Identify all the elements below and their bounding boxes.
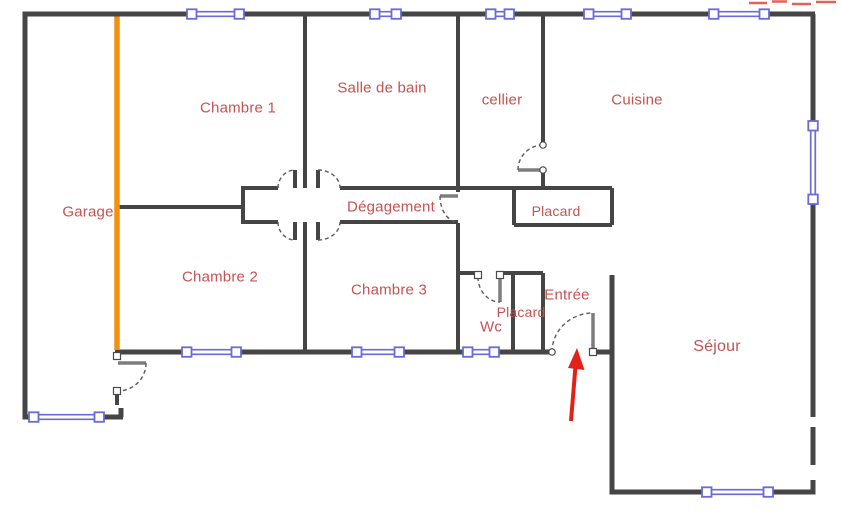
- window-symbol: [709, 9, 769, 18]
- floor-plan-drawing: [0, 0, 841, 528]
- window-symbol: [702, 487, 773, 497]
- window-symbol: [584, 9, 631, 18]
- window-symbol: [808, 121, 818, 204]
- window-symbol: [486, 9, 514, 18]
- window-symbol: [29, 412, 104, 422]
- window-symbol: [352, 347, 404, 357]
- window-symbol: [463, 347, 499, 357]
- door-leaves: [118, 170, 593, 363]
- entrance-arrow: [568, 348, 585, 421]
- floor-plan: GarageChambre 1Salle de baincellierCuisi…: [0, 0, 841, 528]
- window-symbol: [370, 9, 401, 18]
- watermark-fragment: [749, 2, 836, 5]
- windows: [29, 9, 818, 497]
- window-symbol: [187, 9, 244, 18]
- interior-walls: [115, 14, 612, 405]
- window-symbol: [182, 347, 241, 357]
- outer-walls: [23, 12, 816, 495]
